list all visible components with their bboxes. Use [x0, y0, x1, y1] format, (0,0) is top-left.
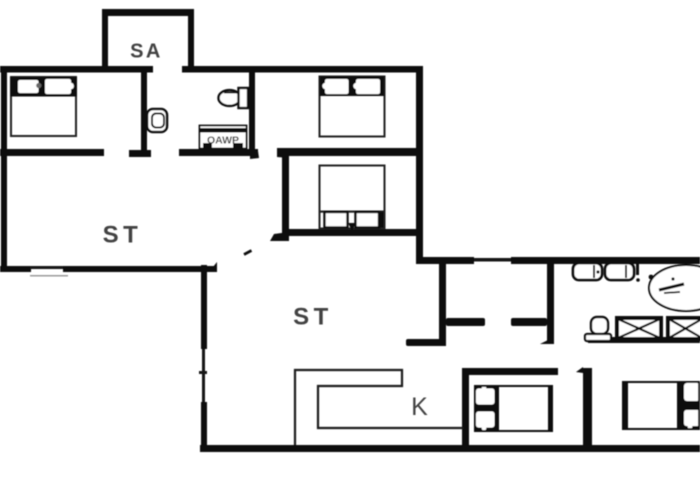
svg-text:ST: ST [103, 222, 143, 249]
svg-text:ST: ST [293, 304, 333, 331]
svg-text:SA: SA [130, 41, 163, 63]
svg-text:K: K [411, 393, 428, 421]
